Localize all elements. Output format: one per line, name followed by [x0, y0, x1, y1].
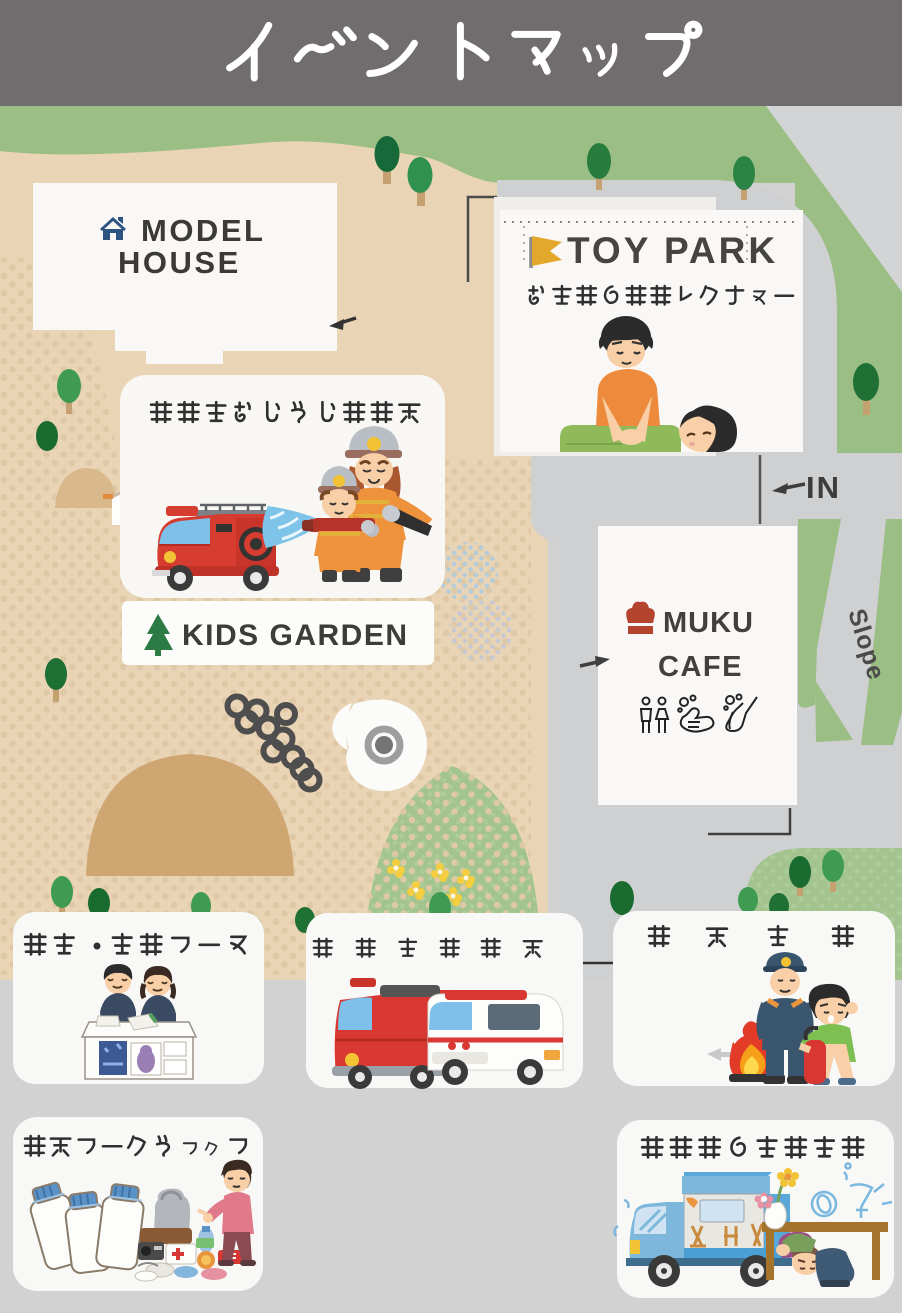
svg-text:MUKU: MUKU — [663, 607, 754, 639]
svg-text:IN: IN — [806, 470, 841, 505]
svg-text:CAFE: CAFE — [658, 651, 743, 683]
svg-text:HOUSE: HOUSE — [118, 245, 241, 280]
svg-text:KIDS GARDEN: KIDS GARDEN — [182, 619, 409, 652]
svg-text:TOY PARK: TOY PARK — [567, 230, 778, 271]
svg-text:MODEL: MODEL — [141, 213, 265, 248]
